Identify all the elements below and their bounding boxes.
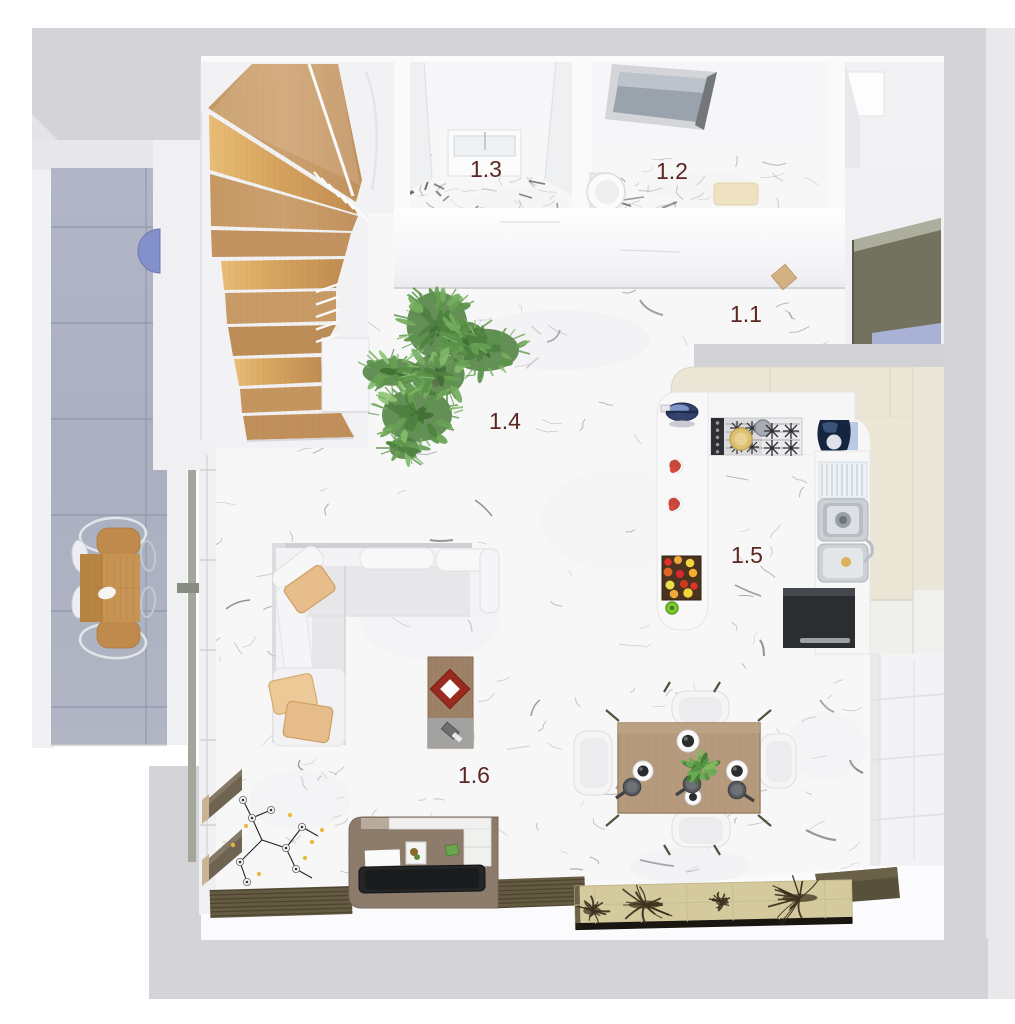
svg-text:1.6: 1.6 [458, 762, 490, 788]
svg-text:1.5: 1.5 [731, 542, 763, 568]
svg-text:1.4: 1.4 [489, 408, 521, 434]
svg-text:1.3: 1.3 [470, 156, 502, 182]
svg-text:1.1: 1.1 [730, 301, 762, 327]
svg-text:1.2: 1.2 [656, 158, 688, 184]
